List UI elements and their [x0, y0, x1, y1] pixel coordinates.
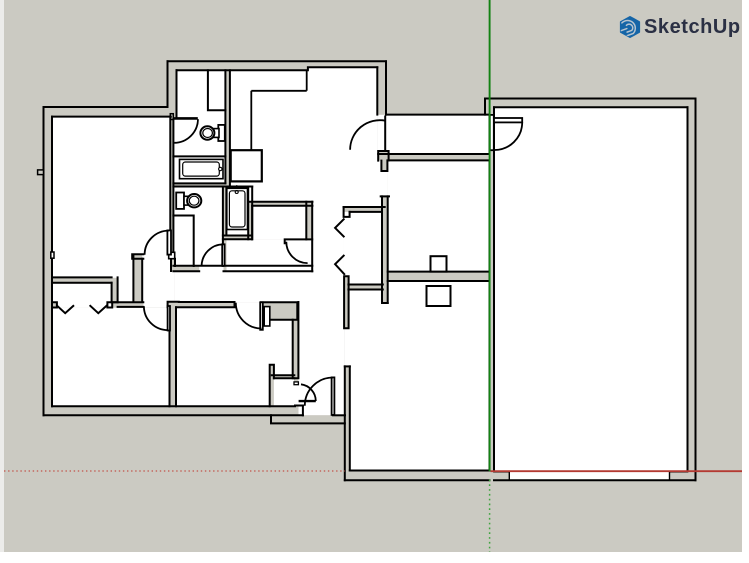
svg-text:SketchUp: SketchUp	[644, 16, 741, 38]
